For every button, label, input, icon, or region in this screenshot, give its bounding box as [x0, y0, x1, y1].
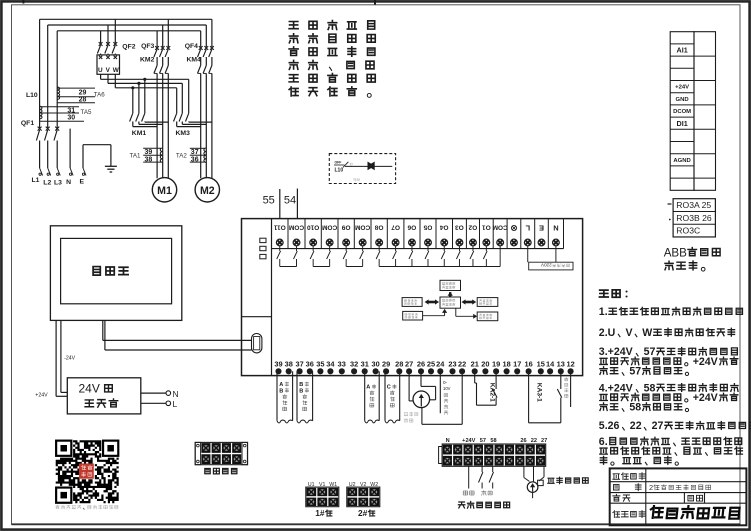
svg-text:55: 55: [263, 195, 275, 207]
svg-text:36: 36: [306, 360, 314, 369]
svg-text:DI1: DI1: [677, 119, 688, 128]
svg-text:3.+24V: 3.+24V: [599, 346, 633, 358]
svg-text:22: 22: [630, 420, 642, 432]
svg-text:O6: O6: [407, 224, 416, 231]
svg-text:24: 24: [436, 360, 445, 369]
svg-text:RO3C: RO3C: [676, 226, 700, 236]
svg-text:L10: L10: [26, 92, 38, 99]
svg-text:TA5: TA5: [81, 109, 92, 116]
svg-text:E: E: [80, 179, 85, 186]
svg-text:U1: U1: [308, 482, 315, 488]
svg-text:V: V: [106, 67, 111, 74]
svg-text:21: 21: [471, 360, 479, 369]
svg-text:58: 58: [644, 382, 656, 394]
svg-text:B: B: [299, 388, 303, 394]
svg-text:19: 19: [492, 360, 500, 369]
svg-text:23: 23: [448, 360, 456, 369]
svg-text:N: N: [553, 224, 558, 233]
svg-text:N: N: [66, 179, 71, 186]
svg-text:O10: O10: [307, 224, 320, 231]
svg-text:34: 34: [326, 360, 335, 369]
svg-text:36: 36: [191, 156, 199, 163]
svg-text:54: 54: [284, 195, 296, 207]
svg-text:39: 39: [274, 360, 282, 369]
svg-text:38: 38: [145, 156, 153, 163]
svg-text:L: L: [173, 399, 178, 409]
svg-text:+24V: +24V: [693, 392, 718, 404]
svg-text:32: 32: [350, 360, 358, 369]
svg-text:29: 29: [382, 360, 390, 369]
svg-text:COM: COM: [289, 224, 304, 231]
svg-text:28: 28: [395, 360, 403, 369]
svg-text:QF2: QF2: [122, 44, 135, 51]
svg-text:O11: O11: [273, 224, 285, 231]
svg-text:15: 15: [537, 360, 545, 369]
svg-text:+24V: +24V: [462, 438, 475, 444]
svg-text:0-: 0-: [443, 380, 448, 385]
svg-text:RO3B 26: RO3B 26: [676, 213, 712, 223]
svg-text:O2: O2: [468, 224, 477, 231]
svg-text:E: E: [539, 224, 544, 233]
svg-text:O3: O3: [455, 224, 464, 231]
svg-text:L1: L1: [32, 177, 40, 184]
svg-text:KM3: KM3: [176, 130, 191, 137]
svg-text:1#: 1#: [315, 508, 325, 518]
svg-text:QF3: QF3: [141, 43, 154, 50]
svg-text:20: 20: [481, 360, 489, 369]
svg-text:17: 17: [513, 360, 521, 369]
svg-text:10V: 10V: [443, 386, 451, 391]
svg-text:O9: O9: [341, 224, 350, 231]
svg-text:39: 39: [145, 149, 153, 156]
svg-text:M1: M1: [157, 185, 172, 197]
svg-text:TA6: TA6: [94, 92, 105, 99]
svg-text:16: 16: [524, 360, 532, 369]
svg-text:77: 77: [350, 163, 354, 167]
svg-text:V2: V2: [360, 482, 366, 488]
svg-text:35: 35: [316, 360, 324, 369]
svg-text:22: 22: [531, 438, 537, 444]
svg-text:27: 27: [652, 420, 664, 432]
svg-text:-24V: -24V: [64, 356, 75, 362]
svg-text:28: 28: [79, 97, 87, 104]
svg-text:V: V: [626, 327, 633, 339]
svg-text:220V: 220V: [540, 263, 552, 268]
svg-text:B: B: [279, 388, 283, 394]
svg-text:W1: W1: [329, 482, 337, 488]
svg-text:COM: COM: [493, 224, 508, 231]
svg-text:L: L: [525, 224, 530, 233]
svg-text:L10: L10: [335, 168, 344, 174]
svg-text:A: A: [366, 385, 370, 391]
svg-text:B: B: [299, 382, 303, 388]
svg-text:37: 37: [191, 149, 199, 156]
svg-text:COM: COM: [355, 224, 370, 231]
svg-text:L3: L3: [54, 180, 62, 187]
svg-text:30: 30: [67, 115, 75, 122]
svg-text:V1: V1: [319, 482, 325, 488]
svg-text:26: 26: [417, 360, 425, 369]
svg-text:KM4: KM4: [187, 57, 202, 64]
svg-text:W: W: [113, 67, 120, 74]
svg-text:13: 13: [557, 360, 565, 369]
svg-text:QF4: QF4: [185, 43, 198, 50]
svg-text:5.26: 5.26: [599, 420, 620, 432]
svg-text:OFF: OFF: [335, 161, 342, 165]
svg-text:14: 14: [546, 360, 555, 369]
svg-text:57: 57: [644, 346, 656, 358]
svg-text:27: 27: [405, 360, 413, 369]
svg-text:31: 31: [361, 360, 369, 369]
svg-text:W: W: [642, 327, 652, 339]
svg-text:27: 27: [541, 438, 547, 444]
svg-text:TA2: TA2: [176, 152, 187, 159]
svg-text:KA2-1: KA2-1: [488, 383, 495, 402]
svg-text:QF1: QF1: [21, 120, 34, 127]
svg-text:O7: O7: [391, 224, 400, 231]
svg-text:29: 29: [79, 89, 87, 96]
svg-text:26: 26: [520, 438, 526, 444]
svg-text:U: U: [98, 67, 103, 74]
svg-text:25: 25: [427, 360, 435, 369]
svg-text:C: C: [387, 385, 391, 391]
svg-text:TA1: TA1: [130, 152, 141, 159]
svg-text:A: A: [279, 382, 283, 388]
svg-text:30: 30: [371, 360, 379, 369]
svg-text:O4: O4: [439, 224, 448, 231]
svg-text:O8: O8: [374, 224, 383, 231]
svg-text:M2: M2: [200, 185, 215, 197]
svg-text:58: 58: [629, 402, 641, 414]
svg-text:DCOM: DCOM: [673, 109, 691, 115]
svg-text:24V: 24V: [79, 382, 104, 396]
svg-text:AI1: AI1: [677, 46, 688, 55]
svg-text:N: N: [446, 438, 450, 444]
svg-text:57: 57: [480, 438, 486, 444]
svg-text:U2: U2: [349, 482, 356, 488]
svg-text:N: N: [173, 389, 179, 399]
svg-text:KM1: KM1: [132, 130, 147, 137]
svg-text:38: 38: [285, 360, 293, 369]
svg-text:2#: 2#: [358, 508, 368, 518]
svg-text:+24V: +24V: [693, 356, 718, 368]
svg-text:RO3A 25: RO3A 25: [676, 200, 711, 210]
svg-text:58: 58: [490, 438, 496, 444]
svg-text:KM2: KM2: [140, 57, 155, 64]
svg-text:33: 33: [338, 360, 346, 369]
svg-text:W2: W2: [370, 482, 378, 488]
svg-text:12: 12: [566, 360, 574, 369]
svg-text:+24V: +24V: [675, 85, 689, 91]
svg-text:ABB: ABB: [664, 246, 687, 259]
svg-text:AGND: AGND: [673, 158, 690, 164]
svg-text:22: 22: [458, 360, 466, 369]
svg-text:2: 2: [649, 483, 653, 492]
svg-text:+24V: +24V: [35, 392, 48, 398]
svg-text:31: 31: [67, 108, 75, 115]
svg-text:O5: O5: [423, 224, 432, 231]
svg-text:18: 18: [502, 360, 510, 369]
svg-text:4.+24V: 4.+24V: [599, 382, 633, 394]
svg-text:O1: O1: [482, 224, 491, 231]
svg-text:GND: GND: [676, 97, 689, 103]
svg-text:2.U: 2.U: [599, 327, 616, 339]
svg-text:37: 37: [295, 360, 303, 369]
svg-text:57: 57: [629, 365, 641, 377]
svg-text:6.: 6.: [599, 436, 608, 448]
svg-text:L2: L2: [43, 180, 51, 187]
svg-text:1.: 1.: [599, 306, 608, 318]
svg-text:KA3-1: KA3-1: [535, 383, 542, 402]
svg-text:COM: COM: [322, 224, 337, 231]
